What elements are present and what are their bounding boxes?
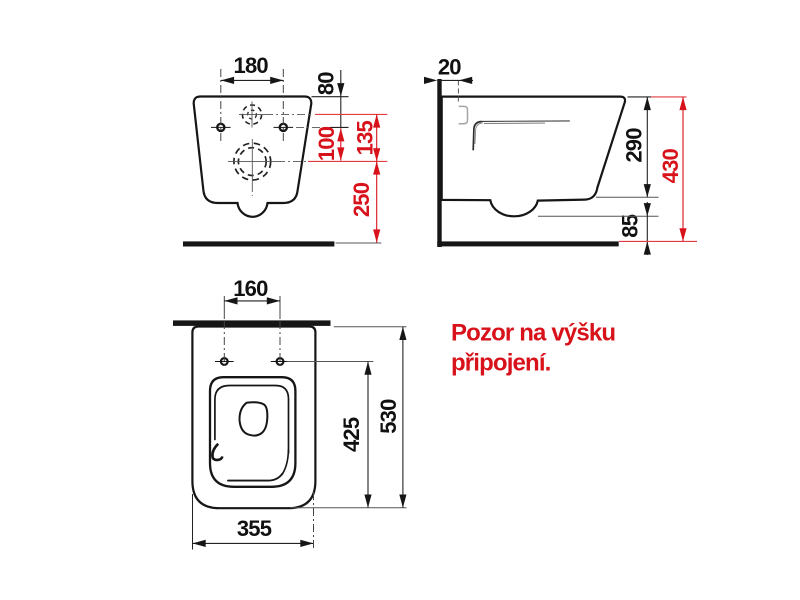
svg-text:355: 355 <box>237 516 272 541</box>
svg-text:135: 135 <box>353 120 378 155</box>
svg-text:Pozor na výšku: Pozor na výšku <box>451 320 615 347</box>
svg-text:připojení.: připojení. <box>451 350 551 377</box>
svg-text:250: 250 <box>349 182 374 217</box>
svg-text:430: 430 <box>658 148 683 183</box>
svg-text:290: 290 <box>621 128 646 163</box>
svg-text:160: 160 <box>233 276 268 301</box>
svg-text:180: 180 <box>234 53 269 78</box>
svg-text:425: 425 <box>339 417 364 452</box>
svg-text:85: 85 <box>617 214 642 237</box>
svg-text:530: 530 <box>376 399 401 434</box>
svg-text:80: 80 <box>314 72 339 95</box>
svg-text:20: 20 <box>438 55 461 80</box>
svg-text:100: 100 <box>314 126 339 161</box>
